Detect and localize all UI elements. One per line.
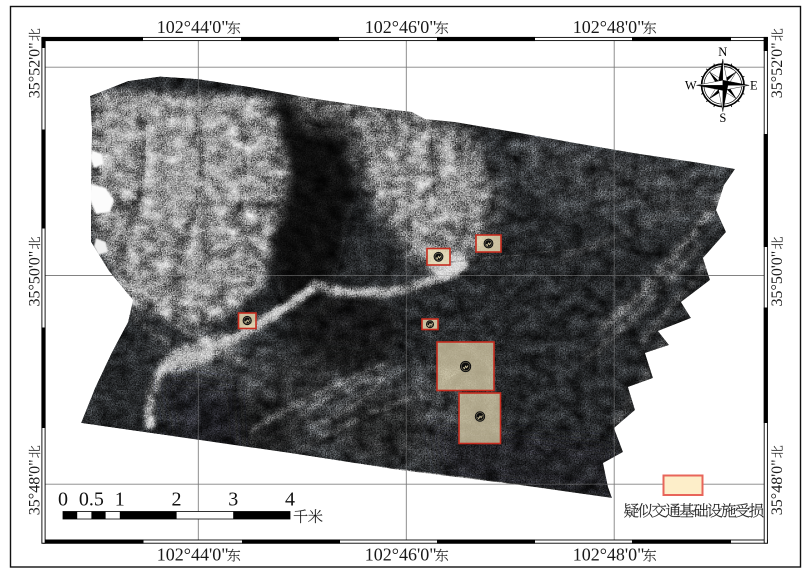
svg-text:102°48'0": 102°48'0" — [573, 545, 645, 565]
svg-text:102°46'0": 102°46'0" — [365, 17, 437, 37]
svg-text:102°48'0": 102°48'0" — [573, 17, 645, 37]
svg-text:35°48'0": 35°48'0" — [769, 459, 786, 515]
svg-text:3: 3 — [228, 489, 238, 511]
svg-text:W: W — [685, 78, 697, 92]
svg-text:0.5: 0.5 — [79, 489, 104, 511]
svg-text:35°48'0": 35°48'0" — [26, 459, 43, 515]
svg-text:35°52'0": 35°52'0" — [769, 42, 786, 98]
svg-text:E: E — [750, 78, 758, 92]
svg-text:1: 1 — [115, 489, 125, 511]
svg-text:102°46'0": 102°46'0" — [365, 545, 437, 565]
svg-text:N: N — [718, 45, 727, 59]
svg-text:0: 0 — [58, 489, 68, 511]
svg-text:35°52'0": 35°52'0" — [26, 42, 43, 98]
svg-text:2: 2 — [172, 489, 182, 511]
svg-text:102°44'0": 102°44'0" — [157, 17, 229, 37]
svg-text:4: 4 — [285, 489, 295, 511]
svg-text:35°50'0": 35°50'0" — [769, 251, 786, 307]
svg-text:35°50'0": 35°50'0" — [26, 251, 43, 307]
svg-text:S: S — [719, 111, 726, 125]
svg-text:102°44'0": 102°44'0" — [157, 545, 229, 565]
